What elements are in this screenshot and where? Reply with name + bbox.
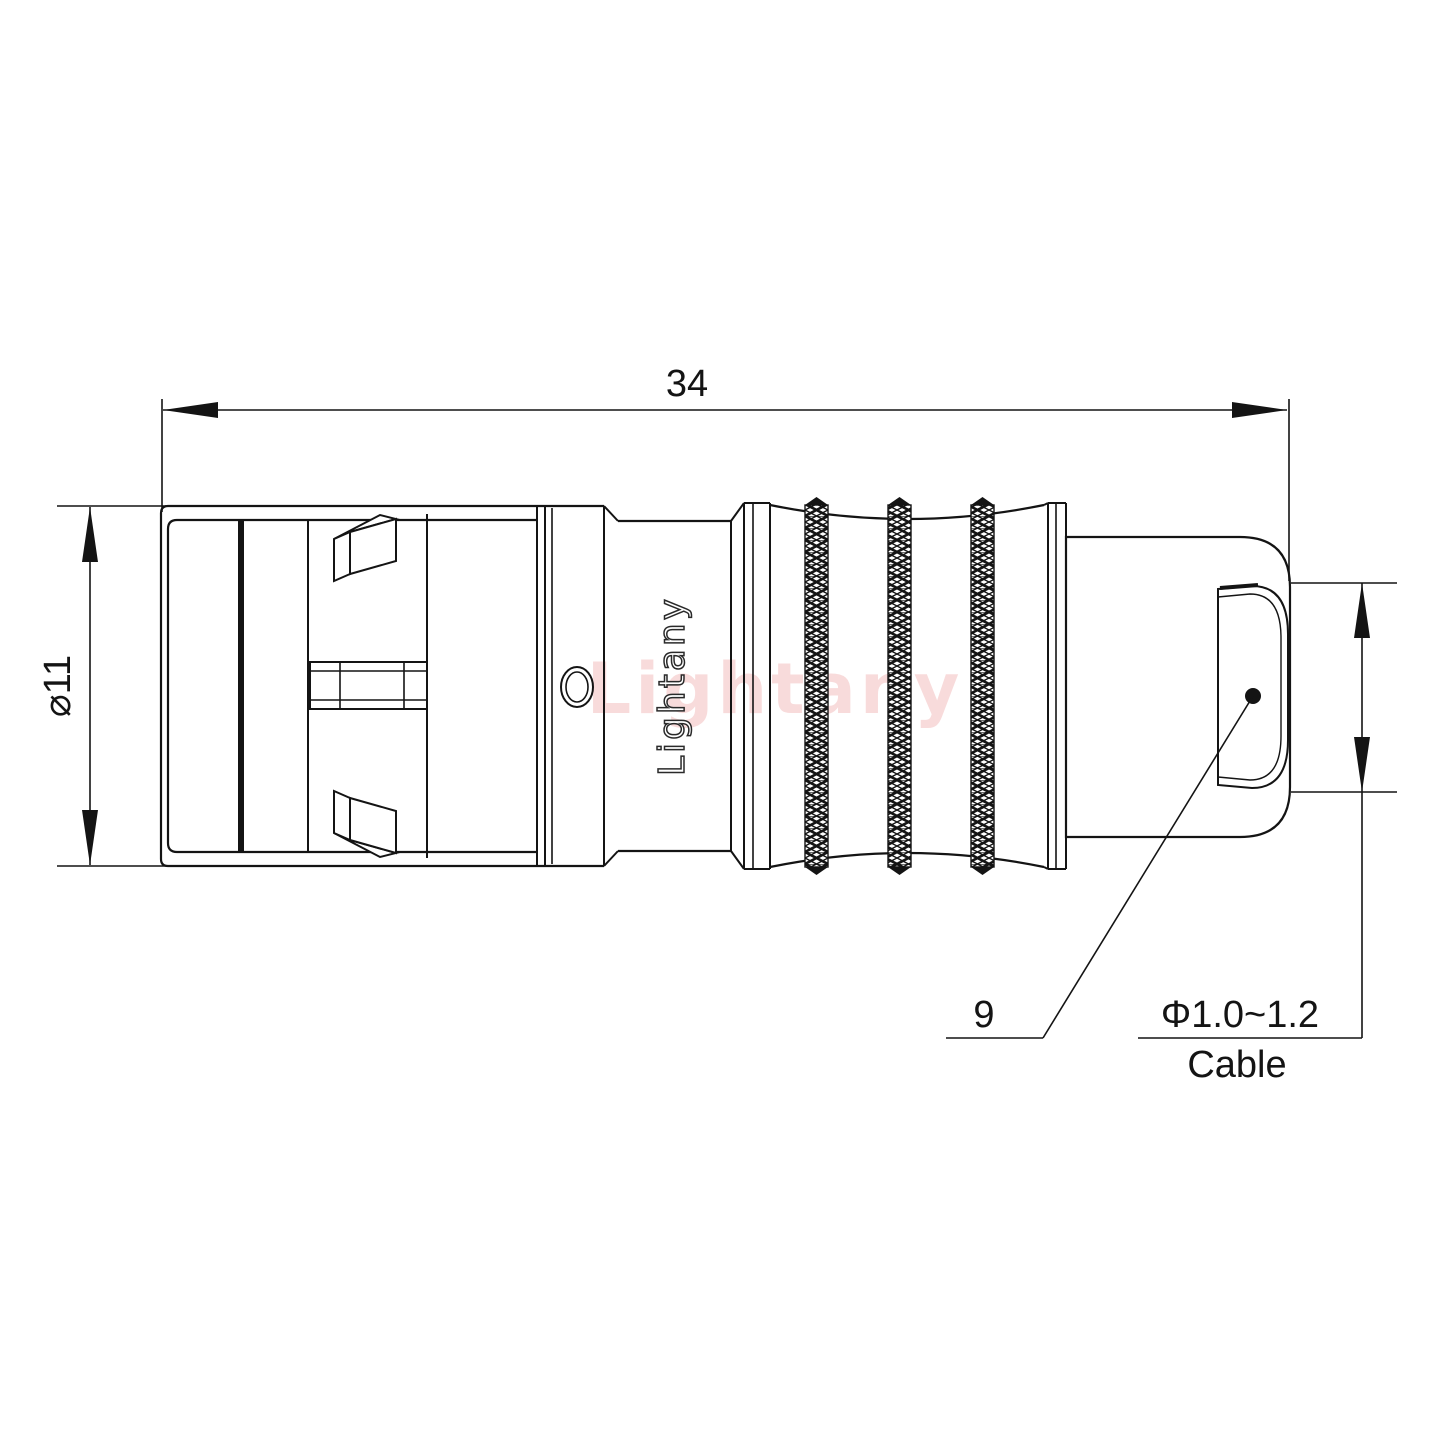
center-key: [310, 662, 427, 709]
knurl-ring-3: [971, 497, 994, 875]
center-key-body: [310, 662, 427, 709]
knurl-tip-bottom: [888, 867, 911, 875]
knurl-band: [971, 505, 994, 867]
knurl-tip-top: [805, 497, 828, 505]
knurl-tip-top: [888, 497, 911, 505]
cable-diameter-value: Φ1.0~1.2: [1161, 994, 1319, 1036]
boot-outer: [1218, 586, 1288, 788]
arrow-left: [163, 402, 218, 418]
arrow-up: [1354, 583, 1370, 638]
knurl-band: [805, 505, 828, 867]
arrow-bottom: [82, 810, 98, 865]
drawing-page: Lightany: [0, 0, 1440, 1440]
end-flange-edges: [1048, 503, 1066, 869]
end-flange-caps: [1048, 503, 1066, 869]
bayonet-key-top: [334, 515, 396, 581]
cable-label: Cable: [1187, 1044, 1286, 1086]
inspection-hole: [561, 667, 593, 707]
knurl-band: [888, 505, 911, 867]
cable-boot: [1218, 585, 1288, 788]
key-left-face-b: [334, 791, 350, 840]
knurl-tip-bottom: [805, 867, 828, 875]
overall-length-value: 34: [666, 363, 708, 405]
knurl-ring-2: [888, 497, 911, 875]
end-flange: [1044, 503, 1066, 869]
arrow-right: [1232, 402, 1287, 418]
key-left-face: [334, 532, 350, 581]
arrow-top: [82, 507, 98, 562]
connector-technical-drawing: Lightany: [0, 0, 1440, 1440]
knurl-tip-bottom: [971, 867, 994, 875]
outer-diameter-value: ⌀11: [37, 655, 79, 717]
arrow-down: [1354, 737, 1370, 792]
bayonet-key-bottom: [334, 791, 396, 857]
knurl-tip-top: [971, 497, 994, 505]
knurl-ring-1: [805, 497, 828, 875]
dim-outer-diameter: ⌀11: [37, 506, 166, 866]
boot-ref-value: 9: [973, 994, 994, 1036]
body-logo-text: Lightany: [652, 596, 693, 776]
